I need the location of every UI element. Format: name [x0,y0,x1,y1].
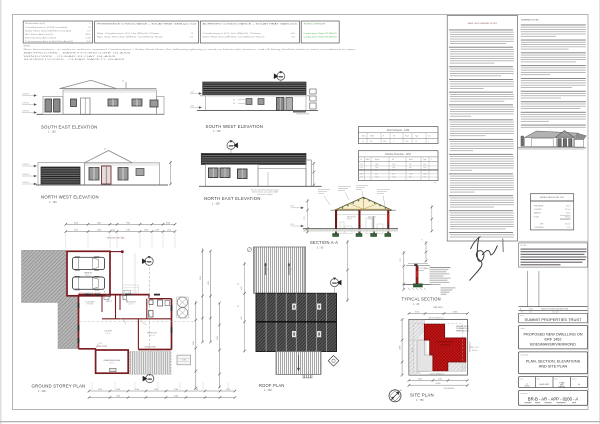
svg-text:D2: D2 [104,149,106,151]
svg-text:14.2 m2: 14.2 m2 [149,335,154,337]
svg-text:AND SITE PLAN: AND SITE PLAN [539,365,568,369]
svg-text:2100: 2100 [423,167,427,169]
svg-text:75: 75 [421,240,423,242]
svg-text:Conductance (C): Uw (W/m2) / R: Conductance (C): Uw (W/m2) / Room [203,32,262,35]
svg-text:Net Floor Area (m2): Net Floor Area (m2) [25,33,54,36]
svg-text:900: 900 [409,177,412,179]
svg-text:1 : 100: 1 : 100 [212,202,220,205]
svg-text:1 : 100: 1 : 100 [48,131,56,134]
svg-text:952 m2: 952 m2 [565,223,571,225]
svg-text:DP: DP [237,284,239,286]
svg-text:1200: 1200 [392,167,396,169]
svg-text:4 568 NGL: 4 568 NGL [22,174,29,176]
svg-text:KITCHEN: KITCHEN [87,304,94,306]
svg-text:1 : 20: 1 : 20 [413,303,420,306]
svg-text:1 400: 1 400 [111,230,115,232]
svg-text:Head: Head [405,136,409,138]
svg-text:BOESMANSRIVIERMOND: BOESMANSRIVIERMOND [530,343,576,347]
svg-text:4 568: 4 568 [190,106,194,108]
svg-text:8 850: 8 850 [418,378,422,380]
svg-text:NOTES: NOTES [521,245,527,247]
svg-text:147 m2: 147 m2 [565,209,571,211]
svg-text:4 500: 4 500 [74,230,78,232]
svg-text:Window Schedule - 1452: Window Schedule - 1452 [385,154,411,156]
svg-text:NOTES:: NOTES: [24,46,31,48]
svg-text:900: 900 [409,167,412,169]
svg-text:0.812: 0.812 [291,33,295,35]
svg-text:D2: D2 [122,81,124,83]
svg-text:8 150: 8 150 [200,276,202,280]
svg-text:7 440: 7 440 [116,396,120,398]
svg-text:Solar Heat Gain (SHGC): Uw (W/: Solar Heat Gain (SHGC): Uw (W/m2) / Room [203,36,266,39]
svg-text:3 600: 3 600 [144,230,148,232]
svg-text:4 500: 4 500 [74,222,78,224]
svg-text:GROUND STOREY PLAN: GROUND STOREY PLAN [32,384,86,389]
svg-text:3 000: 3 000 [194,389,198,391]
svg-text:BED ROOM: BED ROOM [368,217,376,219]
svg-text:DP: DP [237,306,239,308]
svg-text:ACHIEVED CONDUCTANCE + SOLAR H: ACHIEVED CONDUCTANCE + SOLAR HEAT GAIN (… [203,22,299,25]
svg-text:COVERED: COVERED [534,209,543,211]
svg-text:2 260: 2 260 [126,230,130,232]
svg-text:22.4 m2: 22.4 m2 [105,333,110,335]
svg-text:3 300: 3 300 [154,389,158,391]
svg-text:SITE PLAN: SITE PLAN [410,393,434,398]
svg-text:AREA SCHEDULE ERF 1452: AREA SCHEDULE ERF 1452 [540,196,564,199]
svg-text:BEDROOM: BEDROOM [147,333,157,335]
svg-text:W4: W4 [361,173,363,175]
svg-text:2 300: 2 300 [166,222,170,224]
svg-text:4 568 NGL: 4 568 NGL [22,94,29,96]
svg-text:3 700: 3 700 [98,389,102,391]
svg-text:SOUTH WEST ELEVATION: SOUTH WEST ELEVATION [206,124,264,129]
svg-text:D1: D1 [104,85,106,87]
svg-text:% Fenestration Area to Nett Fl: % Fenestration Area to Nett Floor Area(%… [25,40,74,43]
svg-text:SITE/C ERROR: SITE/C ERROR [304,23,327,25]
svg-text:1800: 1800 [375,164,379,166]
svg-text:PROPOSED NEW: PROPOSED NEW [437,342,454,344]
svg-text:Fenestration Area (m2): Fenestration Area (m2) [25,36,57,39]
svg-text:Door Schedule - 1452: Door Schedule - 1452 [387,129,410,132]
svg-text:drawn: drawn [554,378,558,380]
svg-text:TOTAL: TOTAL [534,215,539,218]
svg-text:W5: W5 [361,177,363,179]
svg-text:2100: 2100 [423,177,427,179]
svg-text:0.17: 0.17 [87,30,90,32]
svg-text:DWELLING: DWELLING [440,344,451,346]
svg-text:0.22: 0.22 [292,37,295,39]
svg-text:2 300: 2 300 [155,230,159,232]
svg-text:PERMISSIBLE: 50 %: PERMISSIBLE: 50 % [456,330,470,332]
svg-text:4 568: 4 568 [190,92,194,94]
svg-text:scale: scale [520,378,523,380]
svg-text:4 440: 4 440 [97,222,101,224]
svg-text:198 m2: 198 m2 [565,216,571,218]
svg-text:W: W [434,183,436,185]
svg-text:1200: 1200 [392,170,396,172]
svg-text:D0: D0 [233,103,235,105]
svg-text:2 700: 2 700 [400,258,402,262]
svg-text:2100: 2100 [423,173,427,175]
svg-text:PLAN, SECTION, ELEVATIONS: PLAN, SECTION, ELEVATIONS [526,359,581,363]
svg-text:STORE: STORE [181,360,186,362]
svg-text:BEDROOM 2: BEDROOM 2 [126,301,136,303]
svg-text:COVERAGE: COVERAGE [534,226,544,229]
svg-text:D1: D1 [362,141,364,143]
svg-text:D0: D0 [233,100,235,102]
svg-text:1.8: 1.8 [88,27,90,29]
svg-text:2100: 2100 [423,164,427,166]
svg-text:21.464: 21.464 [85,37,90,39]
svg-text:PROPOSED NEW DWELLING ON: PROPOSED NEW DWELLING ON [523,332,582,336]
svg-text:3 000: 3 000 [116,389,120,391]
svg-text:33 m2: 33 m2 [566,213,571,215]
svg-text:Rev: Rev [521,312,524,314]
svg-text:Type: Type [415,136,418,138]
svg-text:1 : 100: 1 : 100 [213,130,221,133]
svg-text:Type: Type [423,159,426,161]
svg-text:W2: W2 [361,167,363,169]
svg-text:Solar Heat Gain (SHGC) needed: Solar Heat Gain (SHGC) needed [25,29,71,32]
svg-text:900: 900 [409,164,412,166]
svg-text:SANS 10400 GENERAL NOTES: SANS 10400 GENERAL NOTES [468,22,498,25]
svg-text:29 450: 29 450 [400,345,402,350]
svg-text:900: 900 [409,170,412,172]
svg-text:29 450: 29 450 [436,383,441,385]
svg-text:2100: 2100 [423,170,427,172]
svg-text:BATHROOMS - SAFETY/OBSCURE GLA: BATHROOMS - SAFETY/OBSCURE GLASS [24,51,133,54]
svg-text:2ND AVENUE: 2ND AVENUE [444,387,455,390]
svg-text:900: 900 [370,141,373,143]
svg-text:4 568 NGL: 4 568 NGL [22,182,29,184]
svg-text:4 568 NGL: 4 568 NGL [22,164,29,166]
svg-text:SECTION A-A: SECTION A-A [310,240,338,245]
svg-text:revision: revision [572,378,577,380]
svg-text:H: H [383,136,384,138]
svg-text:2400: 2400 [375,177,379,179]
svg-text:600: 600 [375,173,378,175]
svg-text:6 000: 6 000 [241,316,243,320]
svg-text:15.38: 15.38 [86,41,90,43]
svg-text:2100: 2100 [383,141,387,143]
svg-text:Conductance (CR) needed: Conductance (CR) needed [25,26,67,29]
svg-text:BRAAI/GAMES AREA: BRAAI/GAMES AREA [103,359,120,362]
svg-text:W1: W1 [361,164,363,166]
svg-text:2100: 2100 [405,141,409,143]
svg-text:4 568: 4 568 [290,224,294,226]
svg-text:1200: 1200 [392,164,396,166]
svg-text:PERMISSIBLE CONDUCTANCE + SOLA: PERMISSIBLE CONDUCTANCE + SOLAR HEAT GAI… [97,22,197,25]
svg-text:9 050: 9 050 [415,312,419,314]
svg-text:NORTH EAST ELEVATION: NORTH EAST ELEVATION [204,196,261,201]
svg-text:6 600: 6 600 [217,336,219,340]
svg-text:NORTH WEST ELEVATION: NORTH WEST ELEVATION [41,195,99,200]
svg-text:MERWE: MERWE [558,386,565,388]
svg-text:SLIDING DOORS: SLIDING DOORS [144,347,155,349]
svg-text:8 150: 8 150 [241,286,243,290]
svg-text:ROOF PLAN: ROOF PLAN [259,383,284,388]
svg-text:OPEN AREA: OPEN AREA [534,205,545,208]
svg-text:4 568: 4 568 [290,206,294,208]
svg-text:New fenestration - in order to: New fenestration - in order to achieve r… [24,48,358,51]
svg-text:21 %: 21 % [567,227,571,229]
svg-text:2 700: 2 700 [304,216,306,220]
svg-text:Window Area (m2): Window Area (m2) [25,22,46,25]
svg-text:GARAGE: GARAGE [534,212,542,215]
svg-text:SOUTH EAST ELEVATION: SOUTH EAST ELEVATION [41,124,97,129]
svg-text:LOUNGE: LOUNGE [104,331,112,333]
svg-text:1.8: 1.8 [191,33,193,35]
svg-text:5 150: 5 150 [438,378,442,380]
svg-text:19.9 m2: 19.9 m2 [109,362,114,364]
svg-text:W3: W3 [361,170,363,172]
svg-text:8 000: 8 000 [174,396,178,398]
svg-text:1200: 1200 [392,177,396,179]
svg-text:SUMMIT PROPERTIES TRUST: SUMMIT PROPERTIES TRUST [525,317,582,322]
svg-text:18 m2: 18 m2 [566,206,571,208]
svg-text:1:5: 1:5 [291,269,293,271]
svg-text:CONCRETE PLINTH: CONCRETE PLINTH [296,114,309,116]
svg-text:1500: 1500 [375,167,379,169]
svg-text:1 : 100: 1 : 100 [38,390,46,393]
svg-text:Head: Head [409,159,413,161]
svg-text:7 440: 7 440 [126,222,130,224]
svg-text:3 300: 3 300 [174,389,178,391]
svg-text:ERF 1452: ERF 1452 [433,307,443,309]
svg-text:Max. Solar Heat Gain (SHGC): U: Max. Solar Heat Gain (SHGC): Uw (W/m2) /… [97,36,164,39]
svg-text:4 568 NGL: 4 568 NGL [22,111,29,113]
svg-text:ERF 1452: ERF 1452 [544,338,561,342]
svg-text:0.25: 0.25 [190,37,193,39]
svg-text:1 : 100: 1 : 100 [264,389,272,392]
svg-text:05-13: 05-13 [529,308,533,310]
svg-text:3 160: 3 160 [135,389,139,391]
svg-text:1:5: 1:5 [267,269,269,271]
svg-text:GARAGE: GARAGE [84,272,93,275]
svg-text:33.1 m2: 33.1 m2 [85,275,90,277]
svg-text:0: 0 [90,23,91,25]
svg-text:600: 600 [392,173,395,175]
svg-text:3 200: 3 200 [193,341,195,345]
svg-text:04-05-2013: 04-05-2013 [539,384,549,386]
svg-text:GENERAL NOTES: GENERAL NOTES [521,19,539,22]
svg-text:4 568 NGL: 4 568 NGL [22,103,29,105]
svg-text:5600 m2: 5600 m2 [472,350,478,352]
svg-text:12.9 m2: 12.9 m2 [128,304,133,306]
svg-text:ERF: ERF [540,223,543,225]
svg-text:4 440: 4 440 [97,230,101,232]
svg-text:900: 900 [375,170,378,172]
svg-text:4 500: 4 500 [208,281,210,285]
svg-text:1500: 1500 [409,173,413,175]
svg-text:1 : 100: 1 : 100 [49,201,57,204]
svg-text:SCULLERY: SCULLERY [86,301,96,303]
svg-text:shown: shown [524,386,529,388]
svg-text:1 : 750: 1 : 750 [416,399,424,402]
svg-text:16 800: 16 800 [453,312,458,314]
svg-text:128.65: 128.65 [85,34,90,36]
svg-text:TYPICAL SECTION: TYPICAL SECTION [402,297,441,302]
svg-text:SLIDING DOORS - CLEAR SAFETY G: SLIDING DOORS - CLEAR SAFETY GLASS [24,58,127,61]
svg-text:1 100: 1 100 [167,230,171,232]
svg-text:BR-B - AR - APP - 0200 - A: BR-B - AR - APP - 0200 - A [528,396,579,401]
svg-text:CBM - +152.2: CBM - +152.2 [470,347,479,349]
svg-text:1 : 50: 1 : 50 [317,247,324,250]
svg-text:Max. Conductance (C): Uw (W/m2: Max. Conductance (C): Uw (W/m2) / Room [97,32,160,35]
svg-text:WINDOWS - CLEAR FLOAT GLASS: WINDOWS - CLEAR FLOAT GLASS [24,55,118,58]
